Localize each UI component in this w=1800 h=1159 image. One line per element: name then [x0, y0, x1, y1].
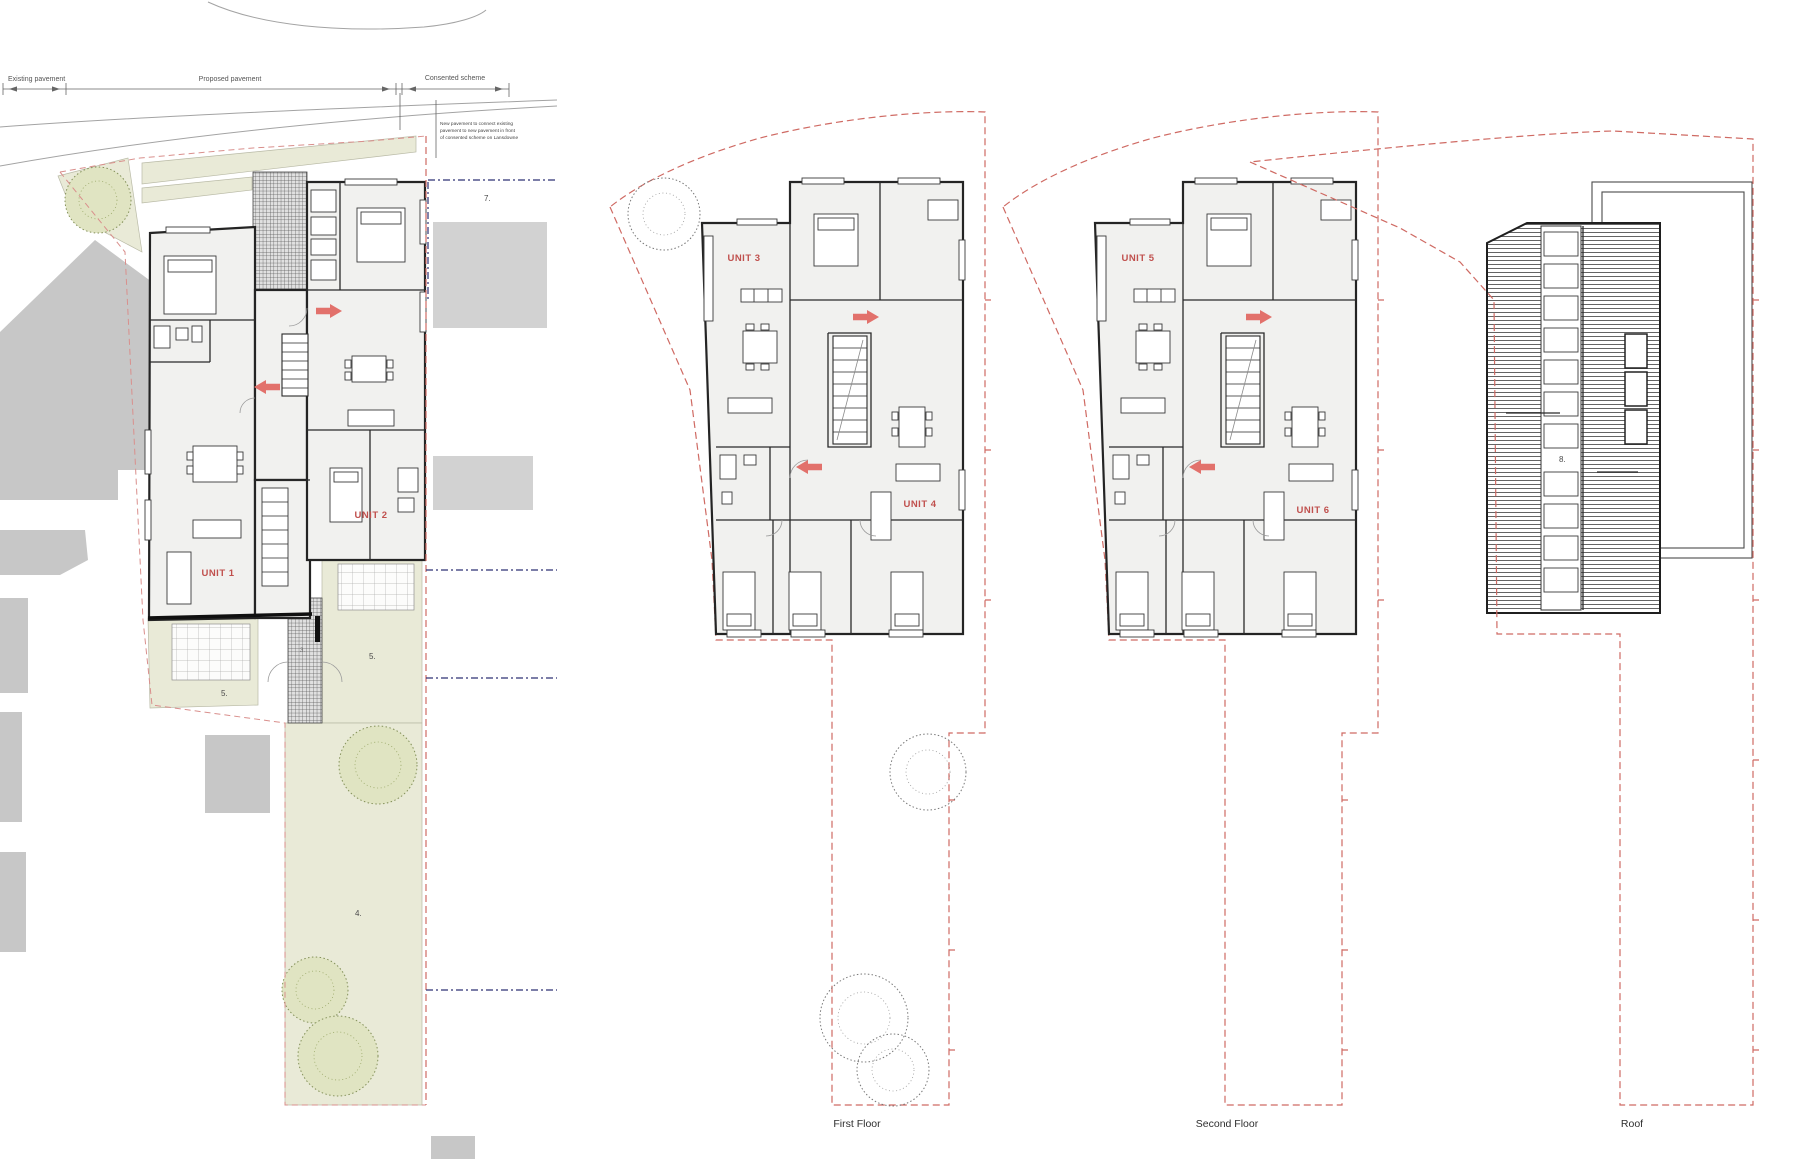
- roof-ridge-boxes: [1544, 232, 1578, 592]
- pavement-dimension-line: Existing pavement Proposed pavement Cons…: [3, 75, 509, 158]
- entrance-drive-hatch: [253, 172, 307, 290]
- area-label-4: 4.: [355, 909, 362, 918]
- tree-icon: [298, 1016, 378, 1096]
- wall-stub: [315, 616, 320, 642]
- area-label-5-right: 5.: [369, 652, 376, 661]
- unit-5-label: UNIT 5: [1121, 253, 1154, 264]
- proposed-roof: [1487, 223, 1660, 613]
- second-floor-plan: UNIT 5 UNIT 6 Second Floor: [1003, 112, 1384, 1130]
- first-floor-caption: First Floor: [833, 1118, 881, 1130]
- road-kerb-lines: [0, 2, 557, 166]
- dim-label-consented-scheme: Consented scheme: [425, 75, 485, 82]
- tree-icon: [339, 726, 417, 804]
- area-label-7: 7.: [484, 194, 491, 203]
- unit-6-label: UNIT 6: [1296, 505, 1329, 516]
- unit-4-label: UNIT 4: [903, 499, 936, 510]
- area-label-3: 3.: [300, 648, 305, 654]
- unit-1-label: UNIT 1: [201, 568, 234, 579]
- second-floor-caption: Second Floor: [1196, 1118, 1259, 1130]
- note-line: pavement to new pavement in front: [440, 128, 516, 134]
- tree-icon: [65, 167, 131, 233]
- first-floor-plan: UNIT 3 UNIT 4 First Floor: [610, 112, 991, 1130]
- tree-icon: [890, 734, 966, 810]
- pavement-note: New pavement to connect existing pavemen…: [440, 121, 518, 141]
- architectural-drawing-sheet: Existing pavement Proposed pavement Cons…: [0, 0, 1800, 1159]
- tree-icon: [820, 974, 908, 1062]
- floor-plans-svg: Existing pavement Proposed pavement Cons…: [0, 0, 1800, 1159]
- area-label-5-left: 5.: [221, 689, 228, 698]
- tree-icon: [628, 178, 700, 250]
- site-plan-ground-floor: Existing pavement Proposed pavement Cons…: [0, 2, 557, 1159]
- tree-icon: [857, 1034, 929, 1106]
- roof-label-8: 8.: [1559, 455, 1566, 464]
- unit-3-label: UNIT 3: [727, 253, 760, 264]
- rooflights: [1625, 334, 1647, 444]
- roof-caption: Roof: [1621, 1118, 1643, 1130]
- note-line: of consented scheme on Lansdowne: [440, 135, 518, 141]
- staircase: [282, 334, 308, 396]
- dim-label-proposed-pavement: Proposed pavement: [199, 76, 262, 83]
- dim-label-existing-pavement: Existing pavement: [8, 76, 65, 83]
- unit-2-label: UNIT 2: [354, 510, 387, 521]
- store-shelves: [262, 488, 288, 586]
- note-line: New pavement to connect existing: [440, 121, 513, 127]
- tree-icon: [282, 957, 348, 1023]
